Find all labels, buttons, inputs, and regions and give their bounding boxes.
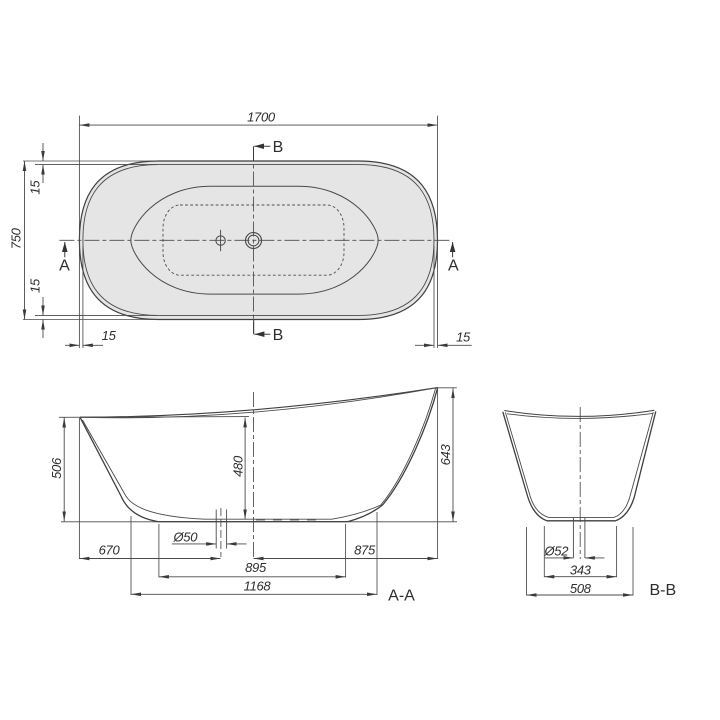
svg-text:506: 506 [49, 457, 64, 479]
svg-text:A: A [59, 258, 70, 275]
svg-text:480: 480 [230, 455, 245, 477]
svg-text:1168: 1168 [244, 579, 272, 594]
svg-text:875: 875 [354, 542, 376, 557]
svg-text:643: 643 [438, 444, 453, 466]
svg-text:B: B [273, 327, 284, 344]
svg-text:A-A: A-A [388, 587, 415, 604]
svg-text:B-B: B-B [649, 582, 676, 599]
svg-text:15: 15 [102, 328, 117, 343]
svg-text:15: 15 [456, 330, 471, 345]
svg-text:15: 15 [28, 180, 43, 195]
svg-text:670: 670 [99, 542, 121, 557]
svg-text:15: 15 [28, 278, 43, 293]
svg-text:Ø52: Ø52 [544, 544, 570, 559]
svg-text:750: 750 [9, 227, 24, 249]
svg-text:895: 895 [245, 560, 267, 575]
svg-text:B: B [273, 139, 284, 156]
svg-text:Ø50: Ø50 [173, 530, 199, 545]
svg-text:A: A [448, 258, 459, 275]
svg-text:508: 508 [570, 581, 592, 596]
svg-text:1700: 1700 [247, 110, 276, 125]
svg-text:343: 343 [570, 562, 592, 577]
